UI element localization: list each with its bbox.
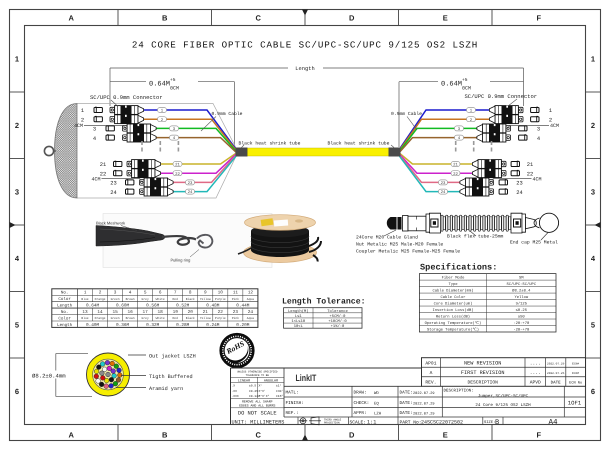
- svg-text:23: 23: [441, 181, 446, 186]
- svg-text:E: E: [443, 14, 448, 23]
- svg-text:Aqua: Aqua: [247, 298, 254, 301]
- svg-text:FIRST REVISION: FIRST REVISION: [461, 370, 505, 376]
- svg-text:APPR:: APPR:: [354, 411, 367, 416]
- svg-text:Ø8.2±0.4: Ø8.2±0.4: [512, 288, 531, 293]
- svg-text:22: 22: [218, 310, 224, 315]
- svg-text:3: 3: [114, 291, 117, 296]
- svg-text:.XX: .XX: [232, 390, 238, 393]
- svg-text:17: 17: [143, 310, 149, 315]
- svg-text:0.9mm Cable: 0.9mm Cable: [212, 111, 243, 117]
- svg-text:A: A: [69, 14, 75, 23]
- svg-text:-20-+70: -20-+70: [513, 321, 530, 326]
- svg-text:B: B: [162, 14, 168, 23]
- svg-text:Operating Temperature(℃): Operating Temperature(℃): [425, 321, 482, 326]
- svg-text:REF.:: REF.:: [286, 411, 299, 416]
- svg-text:Storage Temperature(℃): Storage Temperature(℃): [427, 327, 479, 332]
- svg-text:D: D: [349, 14, 355, 23]
- svg-text:0.40M: 0.40M: [86, 323, 100, 328]
- svg-text:LinkIT: LinkIT: [296, 372, 317, 383]
- svg-text:6: 6: [591, 387, 595, 396]
- svg-text:2022.07.29: 2022.07.29: [413, 402, 435, 407]
- svg-text:4: 4: [537, 136, 540, 142]
- svg-text:White: White: [156, 297, 165, 301]
- svg-text:4: 4: [93, 136, 96, 142]
- svg-text:Yellow: Yellow: [200, 316, 211, 320]
- svg-text:DRAW:: DRAW:: [354, 391, 367, 396]
- svg-text:10: 10: [218, 291, 224, 296]
- svg-text:Yellow: Yellow: [200, 297, 211, 301]
- svg-text:21: 21: [175, 163, 180, 168]
- svg-text:WD: WD: [374, 391, 379, 396]
- svg-text:ECN#: ECN#: [572, 362, 579, 365]
- svg-text:C: C: [256, 14, 262, 23]
- svg-text:23: 23: [188, 181, 193, 186]
- svg-text:3: 3: [93, 127, 96, 133]
- svg-text:Length: Length: [295, 66, 314, 72]
- svg-text:0.20M: 0.20M: [236, 323, 250, 328]
- svg-text:6: 6: [159, 291, 162, 296]
- svg-text:DESCRIPTION: DESCRIPTION: [468, 379, 499, 385]
- svg-text:0.52M: 0.52M: [176, 303, 190, 308]
- svg-text:21: 21: [203, 310, 209, 315]
- svg-text:0.64M: 0.64M: [86, 303, 100, 308]
- svg-text:Specifications:: Specifications:: [420, 263, 497, 273]
- svg-text:3: 3: [537, 127, 540, 133]
- svg-text:Red: Red: [173, 316, 179, 320]
- svg-text:11: 11: [233, 291, 239, 296]
- svg-text:2022.07.29: 2022.07.29: [547, 362, 565, 365]
- svg-text:Out jacket LSZH: Out jacket LSZH: [149, 353, 196, 359]
- svg-text:Black: Black: [186, 316, 195, 320]
- svg-text:0.36M: 0.36M: [116, 323, 130, 328]
- svg-text:FINISH:: FINISH:: [286, 401, 304, 406]
- svg-text:Pink: Pink: [232, 316, 239, 320]
- svg-text:1:1: 1:1: [367, 419, 376, 425]
- svg-text:Insertion Loss(dB): Insertion Loss(dB): [432, 308, 473, 313]
- svg-text:Green: Green: [111, 298, 120, 301]
- svg-text:4CM: 4CM: [550, 123, 559, 129]
- svg-text:ECN#: ECN#: [572, 372, 579, 375]
- svg-text:9/125: 9/125: [516, 301, 528, 306]
- svg-text:Length(M): Length(M): [288, 309, 309, 314]
- svg-text:ECN No: ECN No: [569, 380, 582, 385]
- svg-text:0.64M: 0.64M: [149, 81, 170, 89]
- svg-text:UNLESS OTHERWISE SPECIFIED: UNLESS OTHERWISE SPECIFIED: [237, 371, 278, 374]
- svg-text:NEW REVISION: NEW REVISION: [464, 360, 501, 366]
- svg-text:F: F: [536, 431, 541, 440]
- svg-text:APVD: APVD: [530, 379, 541, 385]
- svg-text:Return Loss(dB): Return Loss(dB): [436, 314, 470, 319]
- svg-text:B: B: [495, 419, 499, 427]
- svg-text:SC/UPC-SC/UPC: SC/UPC-SC/UPC: [506, 282, 536, 287]
- svg-text:SM: SM: [519, 275, 524, 280]
- svg-text:4: 4: [129, 291, 132, 296]
- svg-text:24: 24: [441, 190, 446, 195]
- svg-text:SC/UPC 0.9mm Connector: SC/UPC 0.9mm Connector: [465, 93, 538, 100]
- svg-text:Black heat shrink tube: Black heat shrink tube: [239, 140, 301, 146]
- svg-text:AP01: AP01: [425, 360, 436, 366]
- svg-text:2022.07.29: 2022.07.29: [413, 412, 435, 417]
- svg-text:Core Diameter(um): Core Diameter(um): [434, 301, 473, 306]
- svg-text:....: ....: [530, 361, 541, 366]
- svg-text:0CM: 0CM: [170, 86, 179, 92]
- svg-text:-20-+70: -20-+70: [513, 327, 530, 332]
- svg-text:Grey: Grey: [142, 317, 149, 320]
- svg-text:REV.: REV.: [425, 379, 436, 385]
- svg-text:+5CM/-0: +5CM/-0: [330, 314, 347, 319]
- svg-text:CHECK:: CHECK:: [354, 401, 370, 406]
- svg-text:21: 21: [453, 163, 458, 168]
- svg-text:End cap M25 Metal: End cap M25 Metal: [510, 240, 558, 246]
- svg-text:TOLERANCE TO BE: TOLERANCE TO BE: [246, 374, 270, 377]
- svg-text:+10CM/-0: +10CM/-0: [328, 319, 347, 324]
- svg-text:0.48M: 0.48M: [206, 303, 220, 308]
- svg-text:12: 12: [248, 291, 254, 296]
- svg-text:24: 24: [248, 310, 254, 315]
- svg-text:LINEAR: LINEAR: [238, 379, 250, 384]
- svg-text:DATE:: DATE:: [400, 391, 413, 396]
- svg-text:22: 22: [453, 172, 458, 177]
- svg-text:0.24M: 0.24M: [206, 323, 220, 328]
- svg-text:24SCSC22072502: 24SCSC22072502: [421, 420, 463, 426]
- svg-text:22: 22: [175, 172, 180, 177]
- svg-text:1: 1: [15, 54, 19, 63]
- svg-text:2022.07.25: 2022.07.25: [547, 372, 565, 375]
- svg-text:±15": ±15": [276, 394, 283, 398]
- svg-text:Length Tolerance:: Length Tolerance:: [282, 298, 366, 307]
- svg-text:0.28M: 0.28M: [176, 323, 190, 328]
- svg-text:No.: No.: [61, 291, 69, 296]
- svg-text:Cable Color: Cable Color: [440, 295, 465, 300]
- svg-text:Red: Red: [173, 297, 179, 301]
- svg-text:Yellow: Yellow: [514, 295, 528, 300]
- svg-text:3: 3: [591, 187, 595, 196]
- svg-text:+5: +5: [462, 77, 468, 83]
- svg-text:Black flex tube-25mm: Black flex tube-25mm: [447, 234, 503, 240]
- svg-text:2: 2: [591, 121, 595, 130]
- svg-text:1: 1: [549, 108, 552, 114]
- svg-text:±0.5: ±0.5: [249, 385, 256, 388]
- svg-text:Black heat shrink tube: Black heat shrink tube: [328, 140, 390, 146]
- svg-text:SIZE:: SIZE:: [484, 420, 495, 425]
- svg-text:UNIT: MILLIMETERS: UNIT: MILLIMETERS: [232, 419, 285, 425]
- svg-text:24: 24: [110, 190, 116, 196]
- svg-text:Green: Green: [111, 317, 120, 320]
- svg-text:Purple: Purple: [215, 297, 226, 301]
- svg-text:L≤1: L≤1: [295, 314, 303, 319]
- svg-text:23: 23: [516, 181, 522, 187]
- svg-text:Brown: Brown: [126, 298, 135, 301]
- svg-text:23: 23: [233, 310, 239, 315]
- svg-text:MATL:: MATL:: [286, 391, 299, 396]
- svg-text:15: 15: [112, 310, 118, 315]
- svg-text:≤0.25: ≤0.25: [516, 308, 528, 313]
- svg-text:X°X'X": X°X'X": [259, 394, 270, 398]
- svg-text:1OF1: 1OF1: [568, 400, 582, 407]
- svg-text:5: 5: [144, 291, 147, 296]
- svg-text:Blue: Blue: [81, 316, 88, 320]
- svg-text:DO NOT SCALE: DO NOT SCALE: [238, 411, 277, 417]
- svg-text:2022.07.29: 2022.07.29: [413, 391, 435, 396]
- svg-text:No.: No.: [61, 310, 69, 315]
- svg-text:D: D: [349, 431, 355, 440]
- svg-text:Type: Type: [448, 282, 458, 287]
- svg-text:16: 16: [127, 310, 133, 315]
- svg-text:A: A: [430, 370, 433, 376]
- svg-text:0CM: 0CM: [462, 86, 471, 92]
- svg-text:.X: .X: [232, 385, 236, 388]
- svg-text:Tigth Buffered: Tigth Buffered: [149, 374, 193, 380]
- svg-text:+1%/-0: +1%/-0: [331, 324, 345, 329]
- svg-text:20: 20: [188, 310, 194, 315]
- svg-text:DATE:: DATE:: [400, 401, 413, 406]
- svg-text:24: 24: [516, 190, 522, 196]
- svg-text:....: ....: [530, 371, 541, 376]
- svg-text:SC/UPC 0.9mm Connector: SC/UPC 0.9mm Connector: [90, 94, 163, 101]
- svg-text:3: 3: [15, 187, 19, 196]
- svg-text:21: 21: [100, 162, 106, 168]
- svg-text:EQ: EQ: [374, 402, 379, 407]
- svg-text:8: 8: [189, 291, 192, 296]
- svg-text:PART No:: PART No:: [400, 419, 422, 425]
- svg-text:Pulling ring: Pulling ring: [171, 258, 191, 263]
- svg-text:0.32M: 0.32M: [146, 323, 160, 328]
- svg-text:EDGES AND ALL BURRS: EDGES AND ALL BURRS: [239, 403, 275, 407]
- svg-text:DATE: DATE: [551, 380, 562, 385]
- svg-text:Fiber Mode: Fiber Mode: [442, 275, 466, 280]
- svg-text:E: E: [443, 431, 448, 440]
- svg-text:PROJECTION: PROJECTION: [324, 422, 340, 425]
- svg-text:18: 18: [158, 310, 164, 315]
- svg-text:24Core M20 Cable Gland: 24Core M20 Cable Gland: [356, 235, 418, 241]
- svg-text:±1°: ±1°: [276, 385, 282, 388]
- svg-text:0.56M: 0.56M: [146, 303, 160, 308]
- svg-text:Purple: Purple: [215, 316, 226, 320]
- svg-text:Grey: Grey: [142, 298, 149, 301]
- svg-text:13: 13: [82, 310, 88, 315]
- svg-text:2: 2: [15, 121, 19, 130]
- svg-text:0.64M: 0.64M: [441, 81, 462, 89]
- svg-text:19: 19: [173, 310, 179, 315]
- svg-text:Coupler Metalic M25 Female-M25: Coupler Metalic M25 Female-M25 Female: [356, 249, 460, 255]
- svg-text:Aramid yarn: Aramid yarn: [149, 386, 183, 392]
- svg-text:14: 14: [97, 310, 103, 315]
- svg-text:White: White: [156, 316, 165, 320]
- svg-text:22: 22: [100, 171, 106, 177]
- svg-text:5: 5: [15, 320, 19, 329]
- svg-text:B: B: [162, 431, 168, 440]
- svg-text:1: 1: [591, 54, 595, 63]
- svg-text:Black Meshwork: Black Meshwork: [96, 221, 125, 226]
- svg-text:9: 9: [204, 291, 207, 296]
- svg-text:4CM: 4CM: [533, 176, 542, 182]
- svg-text:C: C: [256, 431, 262, 440]
- svg-text:21: 21: [527, 162, 533, 168]
- svg-text:1: 1: [81, 108, 84, 114]
- svg-text:Nut Metalic M25 Male-M20 Femal: Nut Metalic M25 Male-M20 Female: [356, 242, 443, 248]
- svg-text:SCALE:: SCALE:: [350, 419, 367, 425]
- svg-text:1: 1: [84, 291, 87, 296]
- svg-text:X°X': X°X': [259, 389, 266, 393]
- svg-text:ANGULAR: ANGULAR: [264, 379, 278, 384]
- svg-text:0.9mm Cable: 0.9mm Cable: [391, 111, 422, 117]
- svg-text:DATE:: DATE:: [400, 411, 413, 416]
- svg-text:2: 2: [99, 291, 102, 296]
- svg-text:6: 6: [15, 387, 19, 396]
- svg-text:≥50: ≥50: [518, 314, 526, 319]
- svg-text:±30': ±30': [276, 389, 283, 393]
- svg-text:Tolerance: Tolerance: [327, 309, 348, 314]
- svg-text:A4: A4: [548, 419, 558, 427]
- svg-text:Pink: Pink: [232, 297, 239, 301]
- svg-text:LZH: LZH: [374, 412, 382, 417]
- svg-text:4CM: 4CM: [74, 123, 83, 129]
- svg-text:DESCRIPTION:: DESCRIPTION:: [444, 388, 474, 393]
- svg-text:4CM: 4CM: [91, 176, 100, 182]
- svg-text:A: A: [69, 431, 75, 440]
- svg-text:Brown: Brown: [126, 317, 135, 320]
- svg-text:7: 7: [174, 291, 177, 296]
- svg-text:±0.25: ±0.25: [249, 390, 258, 393]
- svg-text:10<L: 10<L: [294, 324, 304, 329]
- svg-text:0.60M: 0.60M: [116, 303, 130, 308]
- svg-text:+5: +5: [170, 77, 176, 83]
- svg-text:Ø8.2±0.4mm: Ø8.2±0.4mm: [32, 373, 66, 380]
- svg-text:1<L≤10: 1<L≤10: [291, 319, 305, 324]
- svg-text:Cable Diameter(mm): Cable Diameter(mm): [432, 288, 473, 293]
- svg-text:24: 24: [188, 190, 193, 195]
- svg-text:.XXX: .XXX: [232, 395, 239, 398]
- svg-text:Orange: Orange: [95, 317, 106, 320]
- svg-text:24 CORE FIBER OPTIC CABLE SC/U: 24 CORE FIBER OPTIC CABLE SC/UPC-SC/UPC …: [132, 40, 478, 51]
- svg-text:Orange: Orange: [95, 298, 106, 301]
- svg-text:Blue: Blue: [81, 297, 88, 301]
- svg-text:Black: Black: [186, 297, 195, 301]
- svg-text:Aqua: Aqua: [247, 317, 254, 320]
- svg-text:0.44M: 0.44M: [236, 303, 250, 308]
- svg-text:23: 23: [110, 181, 116, 187]
- svg-text:F: F: [536, 14, 541, 23]
- svg-text:5: 5: [591, 320, 595, 329]
- svg-text:X°: X°: [259, 385, 263, 388]
